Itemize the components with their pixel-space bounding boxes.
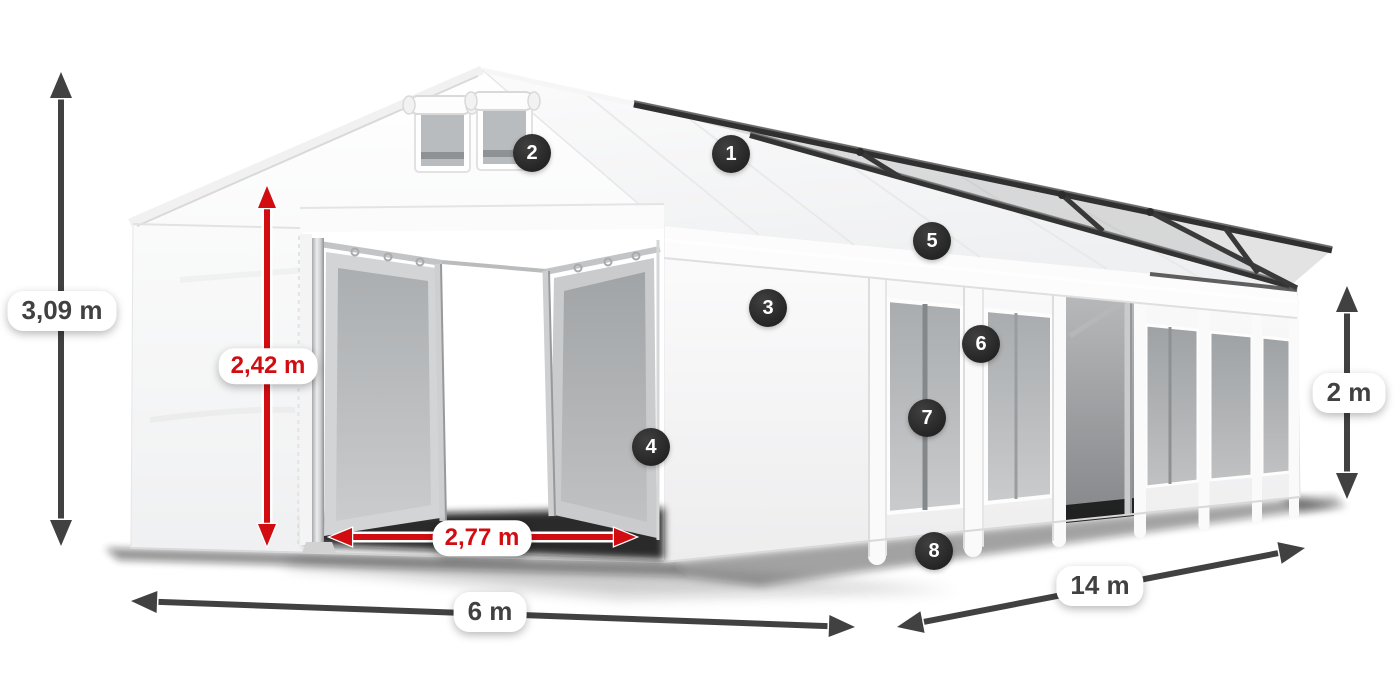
side-window-mesh-rear	[1146, 325, 1290, 487]
dim-label-door-width: 2,77 m	[433, 520, 532, 556]
dim-label-side-length: 14 m	[1056, 566, 1143, 606]
callout-4-door: 4	[632, 428, 670, 466]
callout-5-eave-band: 5	[913, 222, 951, 260]
side-open-bay	[1066, 295, 1134, 523]
dim-label-side-wall-height: 2 m	[1313, 373, 1386, 413]
dim-label-front-width: 6 m	[454, 592, 527, 632]
callout-3-side-wall: 3	[749, 289, 787, 327]
dim-label-door-height: 2,42 m	[219, 348, 318, 384]
dim-label-total-height: 3,09 m	[8, 291, 117, 331]
tent-dimension-diagram: 3,09 m 2,42 m 2,77 m 6 m 14 m 2 m 1 2 3 …	[0, 0, 1400, 700]
front-door-opening	[300, 229, 664, 560]
tent-illustration	[0, 0, 1400, 700]
door-leaf-right	[545, 249, 660, 538]
callout-1-roof-frame: 1	[712, 135, 750, 173]
callout-6-wall-sleeve: 6	[962, 325, 1000, 363]
callout-8-ground-skirt: 8	[915, 532, 953, 570]
door-leaf-left	[320, 244, 446, 536]
callout-2-gable-vent: 2	[513, 134, 551, 172]
callout-7-window-mesh: 7	[908, 399, 946, 437]
